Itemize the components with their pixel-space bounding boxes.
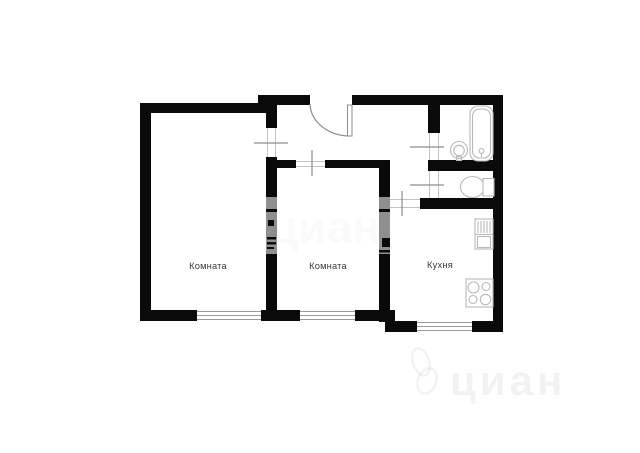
wall-bottom-b	[261, 310, 300, 321]
room-labels: Комната Комната Кухня	[189, 260, 453, 271]
sink-basin	[478, 237, 491, 248]
wall-kitchen-bottom-a	[385, 321, 417, 332]
toilet-icon	[461, 177, 495, 198]
entry-door	[310, 104, 352, 136]
wall-top-hall-right-of-entry	[352, 95, 503, 105]
watermark-text-center: циан	[270, 201, 380, 253]
entry-door-leaf	[348, 105, 353, 136]
door-toilet	[410, 171, 444, 198]
door-kitchen	[390, 191, 420, 216]
kitchen-fixtures	[466, 219, 493, 307]
label-kitchen: Кухня	[427, 260, 453, 270]
bathtub-outer	[470, 106, 493, 161]
bathroom-sink-icon	[451, 142, 468, 161]
burner	[480, 294, 490, 304]
label-room1: Комната	[189, 261, 227, 271]
wall-bathroom-toilet	[428, 160, 503, 171]
bathroom-fixtures	[451, 106, 495, 198]
door-room2	[296, 150, 325, 176]
stove-icon	[466, 279, 493, 307]
wall-hall-room2-a	[277, 160, 296, 168]
wall-kitchen-bottom-b	[472, 321, 503, 332]
wall-top-hall-left-of-entry	[258, 95, 310, 105]
bathtub-icon	[470, 106, 493, 161]
label-room2: Комната	[309, 261, 347, 271]
watermark-text-logo: циан	[450, 357, 566, 404]
watermark-center: циан	[270, 201, 380, 253]
wall-top-left	[140, 103, 277, 113]
window-room1	[197, 310, 261, 321]
watermark-dash	[379, 250, 390, 253]
wall-left	[140, 103, 151, 321]
window-room2	[300, 310, 355, 321]
kitchen-sink-icon	[475, 219, 493, 249]
burner	[469, 296, 477, 304]
wall-bathroom-left-stub	[428, 105, 440, 133]
wall-toilet-kitchen	[420, 198, 503, 209]
watermark-butterfly-wing	[414, 366, 440, 397]
watermark-logo: циан	[409, 346, 566, 404]
wall-right	[493, 95, 503, 332]
watermark-dash	[379, 209, 390, 212]
door-room1	[254, 128, 288, 157]
door-bathroom	[410, 133, 444, 160]
window-kitchen	[417, 321, 472, 332]
wall-room1-room2-upper	[266, 103, 277, 128]
toilet-bowl	[461, 177, 485, 198]
windows	[197, 310, 472, 332]
wall-bottom-a	[140, 310, 197, 321]
floor-plan: Комната Комната Кухня циан циан	[0, 0, 640, 453]
toilet-tank	[483, 179, 494, 197]
burner	[468, 282, 479, 293]
entry-door-arc	[310, 104, 349, 136]
burner	[482, 283, 490, 291]
wall-hall-room2-b	[325, 160, 390, 168]
watermark-dash	[382, 238, 390, 247]
